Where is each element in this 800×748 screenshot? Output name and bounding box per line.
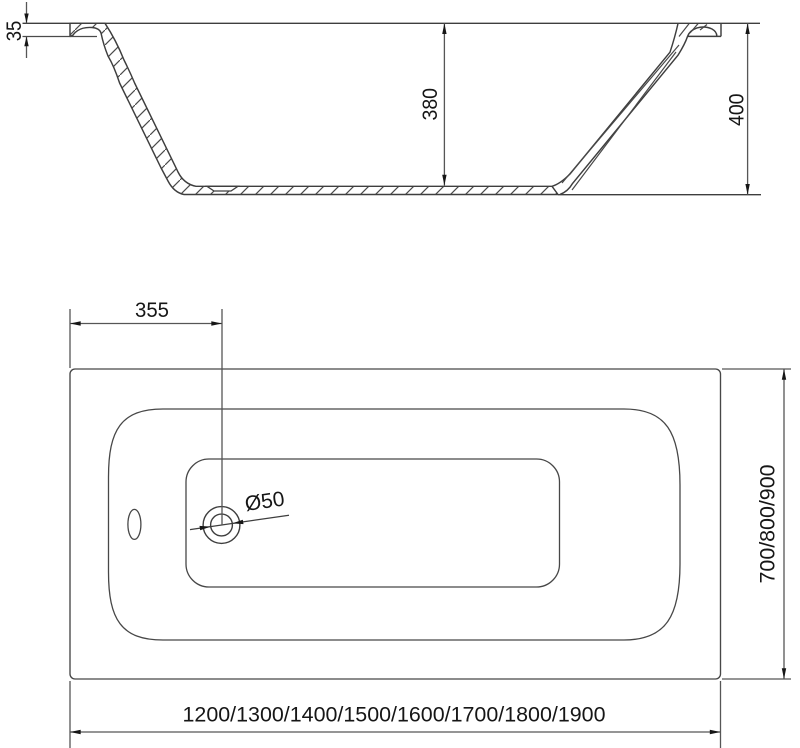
svg-text:700/800/900: 700/800/900 <box>757 465 780 584</box>
svg-text:1200/1300/1400/1500/1600/1700/: 1200/1300/1400/1500/1600/1700/1800/1900 <box>183 704 606 727</box>
svg-text:355: 355 <box>135 299 169 322</box>
svg-text:400: 400 <box>726 94 749 127</box>
svg-text:380: 380 <box>419 88 442 121</box>
svg-text:35: 35 <box>3 21 26 42</box>
